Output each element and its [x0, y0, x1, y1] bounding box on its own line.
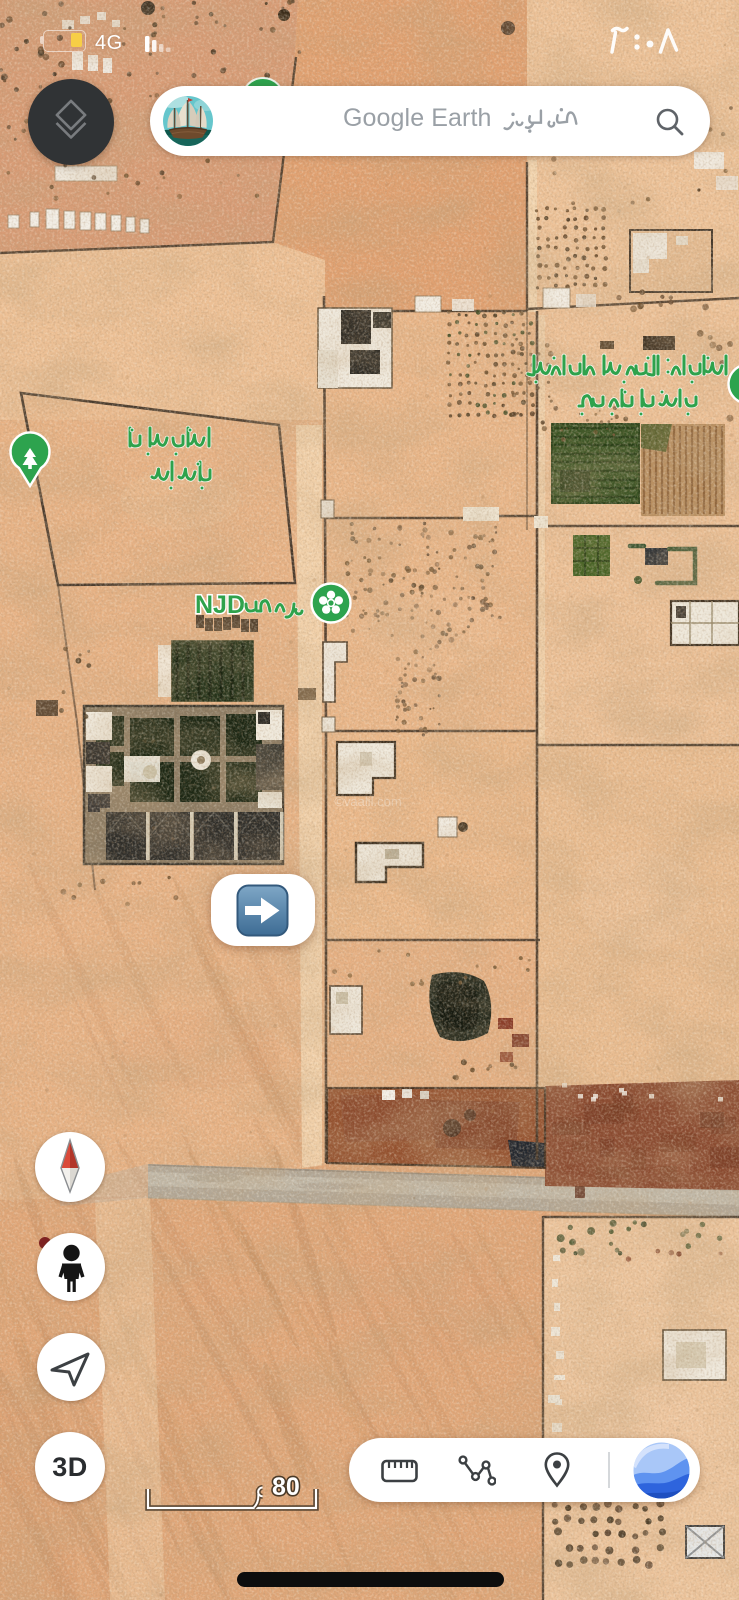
- svg-text:NJD: NJD: [195, 591, 245, 619]
- svg-text:80: 80: [272, 1473, 300, 1501]
